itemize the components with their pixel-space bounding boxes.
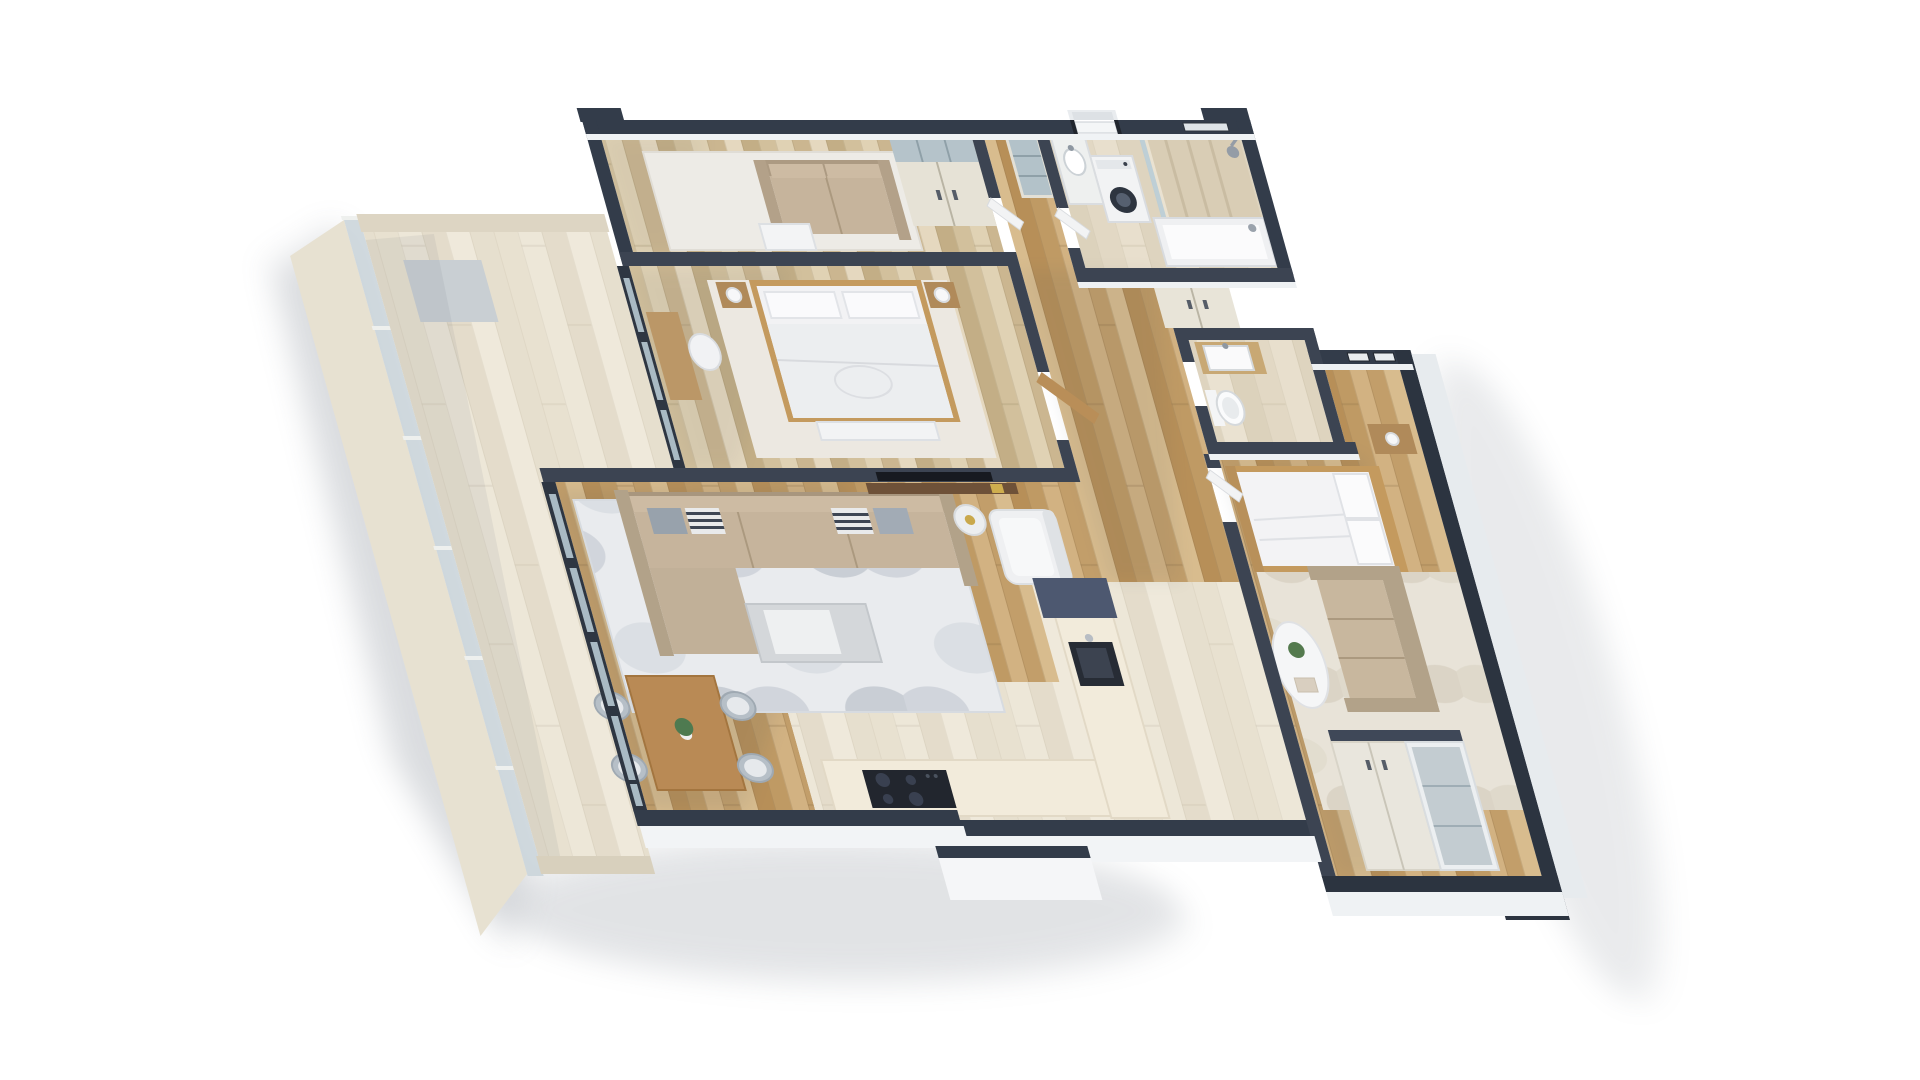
sideboard-top [1328,730,1463,742]
page [0,0,1920,1080]
pillow-stripe [832,513,869,516]
lounge-sofa-cushion [824,164,882,178]
bathroom-south-wall [1073,268,1295,282]
tv-cabinet-books [990,484,1005,493]
pillow-stripe [690,526,725,529]
balustrade-post [495,766,516,770]
balcony-north-wall [356,214,609,232]
second-bathroom-basin [1203,346,1254,370]
pillow-stripe [834,520,871,523]
bathroom-south-wall-face [1077,282,1297,288]
bath2-north-wall [1173,328,1316,340]
balustrade-post [372,326,393,330]
master-bed-pillow [764,292,841,318]
lounge-sofa-cushion [768,164,826,178]
tv-screen [876,472,994,481]
bedroom2-south-wall [1322,876,1562,892]
floorplan-figure [0,0,1920,1080]
south-block-top [935,846,1090,858]
balcony-south-wall [536,856,655,874]
bath2-south-wall [1205,442,1358,454]
entry-threshold [1072,112,1114,120]
pillow-stripe [688,519,723,522]
south-wall-kitchen [954,820,1314,836]
pillow-stripe [836,527,873,530]
sofa-pillow-gray [873,508,914,534]
balustrade-post [402,436,423,440]
bathroom-window [1183,123,1229,131]
bedroom2-window [1373,353,1395,361]
bedroom2-south-wall-face [1326,892,1569,916]
north-wall-west [582,120,1078,134]
floorplan-render [0,0,1920,1080]
sofa-pillow-gray [647,508,688,534]
south-block-face [939,858,1103,900]
balustrade-post [433,546,454,550]
master-bed-bench [817,422,940,440]
south-wall-face-west [640,826,970,848]
kitchen-island-top [1032,578,1117,618]
lounge-master-wall [619,252,1020,266]
south-wall-west [633,810,961,826]
bedroom2-window [1347,353,1369,361]
entry-door [1075,122,1118,133]
pillow-stripe [686,512,721,515]
bath2-south-wall-face [1209,454,1361,460]
tv-wall [539,468,1080,482]
north-wall-face [586,134,1256,140]
balustrade-post [464,656,485,660]
northwest-wall-step [577,108,625,122]
coffee-table-top [763,610,841,654]
lounge-side-table [759,224,816,250]
bedroom2-north-wall-face [1311,364,1414,370]
oval-table-book [1294,678,1318,692]
master-bed-duvet [767,324,953,418]
northeast-wall-step [1201,108,1251,122]
master-bed-pillow [842,292,919,318]
